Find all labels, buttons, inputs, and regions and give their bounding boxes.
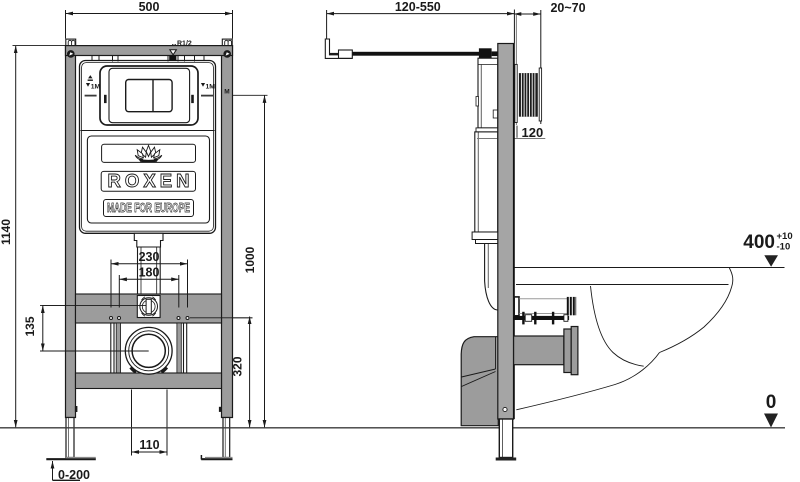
svg-text:1000: 1000	[243, 246, 257, 273]
svg-text:+10: +10	[777, 231, 793, 242]
svg-text:20~70: 20~70	[550, 1, 585, 15]
svg-text:1M: 1M	[91, 83, 101, 90]
svg-text:0: 0	[766, 392, 777, 413]
svg-text:400: 400	[743, 232, 775, 253]
svg-text:1M: 1M	[206, 83, 216, 90]
svg-text:135: 135	[23, 316, 37, 336]
svg-text:120: 120	[522, 125, 544, 140]
svg-text:-10: -10	[777, 242, 791, 253]
svg-text:500: 500	[139, 0, 160, 14]
svg-text:0-200: 0-200	[58, 468, 90, 482]
svg-text:120-550: 120-550	[395, 0, 441, 14]
svg-text:M: M	[224, 89, 229, 96]
svg-text:R1/2: R1/2	[177, 40, 192, 47]
svg-text:MADE FOR EUROPE: MADE FOR EUROPE	[107, 201, 190, 215]
svg-text:110: 110	[139, 438, 159, 452]
svg-text:1140: 1140	[0, 219, 13, 245]
svg-text:ROXEN: ROXEN	[108, 170, 190, 191]
